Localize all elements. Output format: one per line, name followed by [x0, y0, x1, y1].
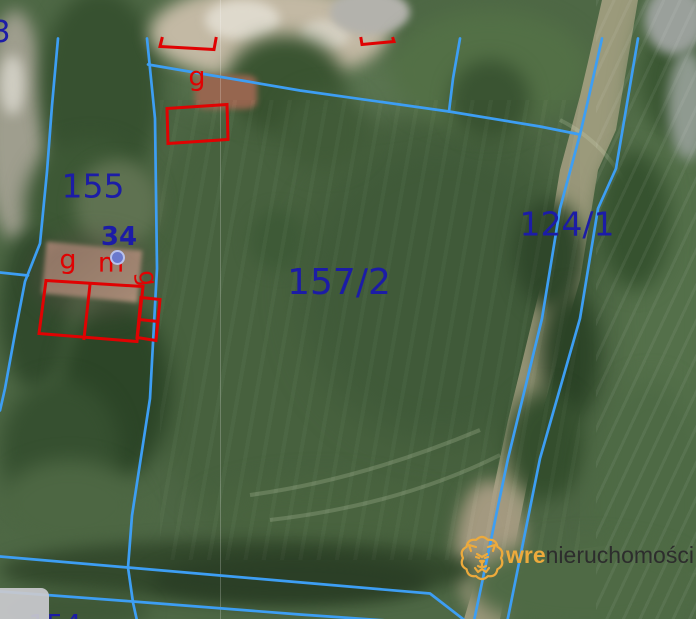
building-letter-top-g: g: [188, 64, 205, 91]
map-labels: 155 157/2 124/1 34 154 3 g g m g: [0, 0, 696, 619]
parcel-label-155: 155: [62, 170, 125, 203]
parcel-label-124-1: 124/1: [519, 208, 614, 241]
brand-text: wrenieruchomości: [506, 542, 694, 568]
building-letter-g-right: g: [135, 268, 162, 287]
watermark-brand: wrenieruchomości: [456, 531, 696, 586]
building-letter-g-left: g: [59, 247, 76, 274]
lion-logo-icon: [456, 531, 512, 586]
map-viewport[interactable]: 155 157/2 124/1 34 154 3 g g m g: [0, 0, 696, 619]
brand-text-wre: wre: [506, 542, 546, 568]
parcel-label-3-partial: 3: [0, 18, 11, 48]
brand-text-nieruchomosci: nieruchomości: [546, 542, 694, 568]
info-box: [0, 588, 49, 619]
parcel-label-157-2: 157/2: [287, 265, 391, 301]
address-label-34: 34: [101, 224, 137, 250]
address-point-marker: [110, 250, 125, 265]
